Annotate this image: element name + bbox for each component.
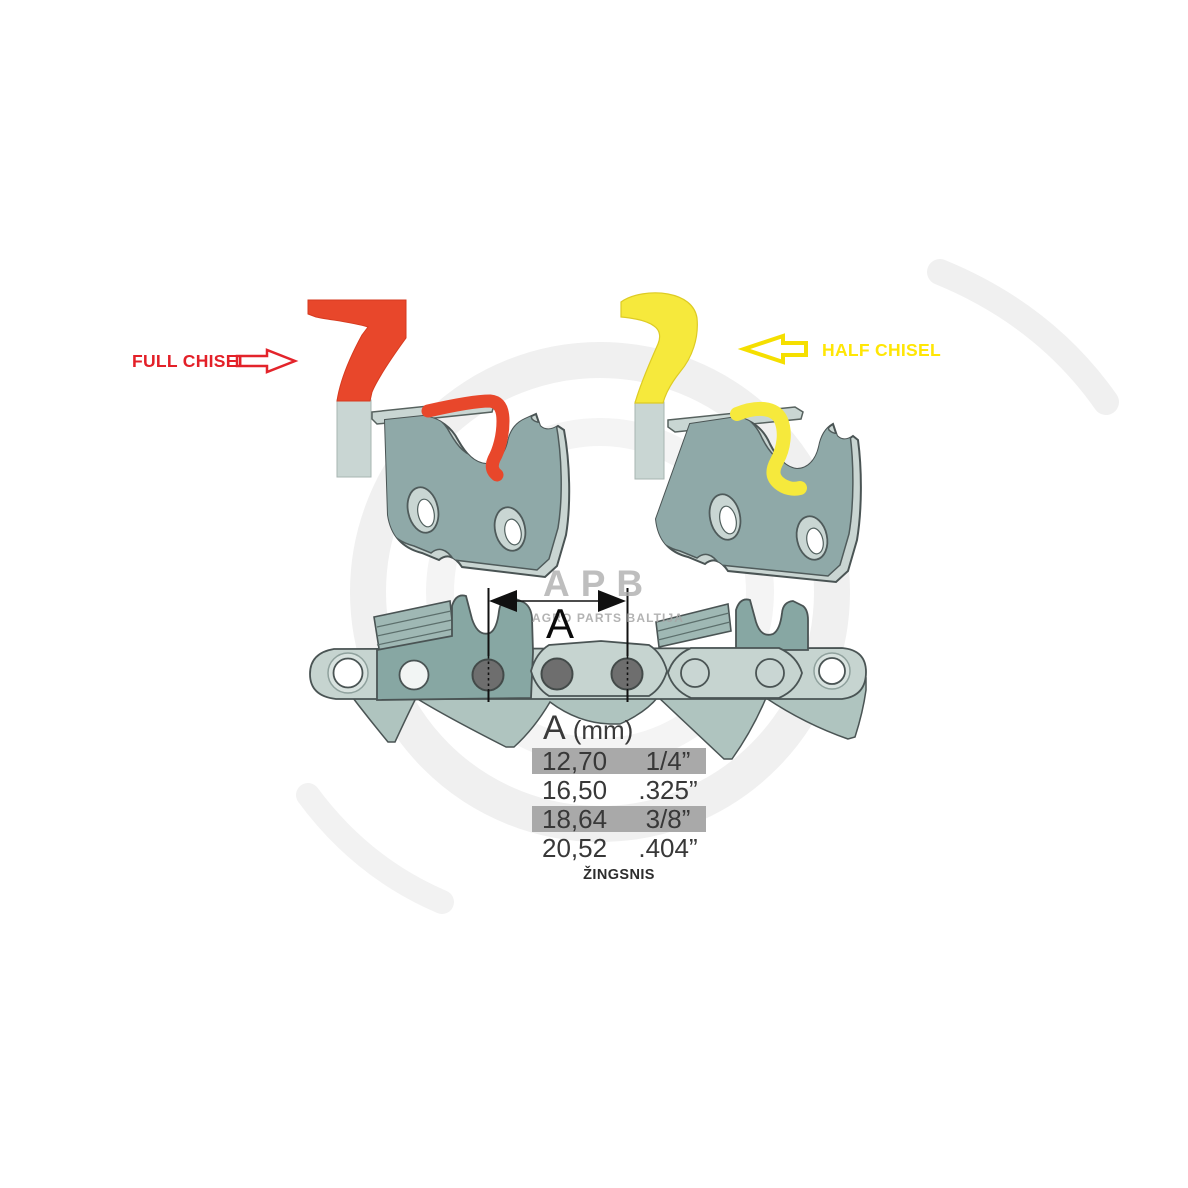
full-chisel-profile-shank [337,400,371,477]
half-chisel-cutter-link [648,407,861,582]
pitch-inch-value: 3/8” [618,806,718,832]
pitch-table-row: 16,50 .325” [532,777,706,803]
chain-rivet-2 [542,659,573,690]
full-chisel-label: FULL CHISEL [132,351,249,372]
chainsaw-chain-pitch-diagram: APB AGRO PARTS BALTIJA FULL CHISEL HALF … [0,0,1188,1188]
chain-hole [756,659,784,687]
pitch-table-row: 12,70 1/4” [532,748,706,774]
pitch-inch-value: .404” [618,835,718,861]
half-chisel-arrow-icon [744,336,806,362]
pitch-table-row: 20,52 .404” [532,835,706,861]
chain-end-hole-right [814,653,850,689]
pitch-mm-value: 12,70 [542,748,607,774]
pitch-table-row: 18,64 3/8” [532,806,706,832]
half-chisel-label: HALF CHISEL [822,340,941,361]
pitch-table-header-symbol: A [543,709,566,748]
pitch-inch-value: 1/4” [618,748,718,774]
watermark-logo-text: APB [543,563,654,605]
pitch-mm-value: 16,50 [542,777,607,803]
chain-end-hole-left [328,653,368,693]
chain-hole [400,661,429,690]
half-chisel-profile-shank [635,402,664,479]
pitch-table-caption: ŽINGSNIS [532,867,706,883]
chain-hole [681,659,709,687]
full-chisel-profile-shape [308,300,406,401]
full-chisel-cutter-link [372,400,569,577]
pitch-mm-value: 20,52 [542,835,607,861]
pitch-table-header: A (mm) [543,709,633,748]
pitch-mm-value: 18,64 [542,806,607,832]
pitch-dimension-label: A [546,600,574,648]
pitch-inch-value: .325” [618,777,718,803]
pitch-table-header-unit: (mm) [573,715,634,746]
